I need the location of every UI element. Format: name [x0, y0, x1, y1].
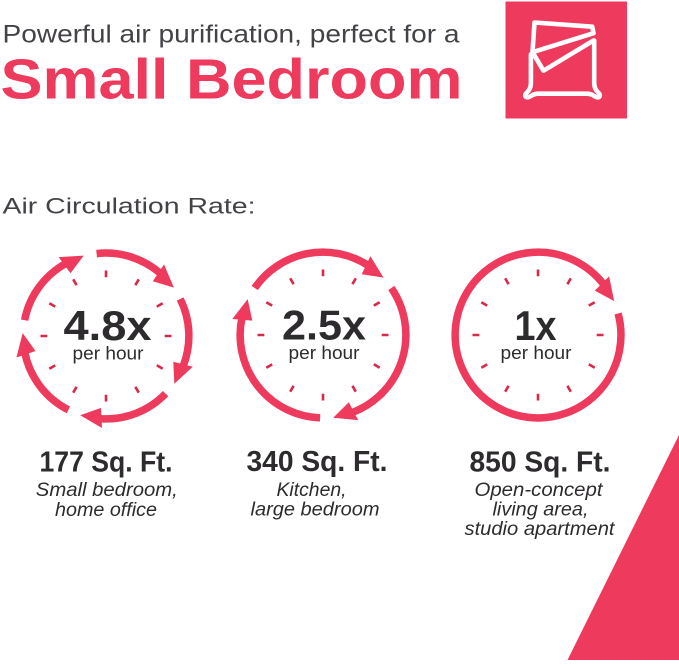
svg-text:177 Sq. Ft.: 177 Sq. Ft.: [40, 446, 173, 478]
svg-text:per hour: per hour: [501, 342, 572, 363]
svg-text:studio apartment: studio apartment: [465, 518, 617, 540]
svg-text:per hour: per hour: [289, 342, 360, 363]
svg-text:Small Bedroom: Small Bedroom: [1, 48, 463, 112]
svg-text:Air Circulation Rate:: Air Circulation Rate:: [3, 194, 256, 219]
svg-text:Small bedroom,: Small bedroom,: [36, 479, 178, 501]
svg-text:850 Sq. Ft.: 850 Sq. Ft.: [470, 446, 611, 478]
svg-text:Powerful air purification, per: Powerful air purification, perfect for a: [3, 21, 461, 49]
svg-text:large bedroom: large bedroom: [251, 499, 380, 521]
svg-text:per hour: per hour: [73, 343, 144, 364]
svg-text:home office: home office: [55, 499, 157, 521]
svg-text:340 Sq. Ft.: 340 Sq. Ft.: [247, 446, 388, 478]
